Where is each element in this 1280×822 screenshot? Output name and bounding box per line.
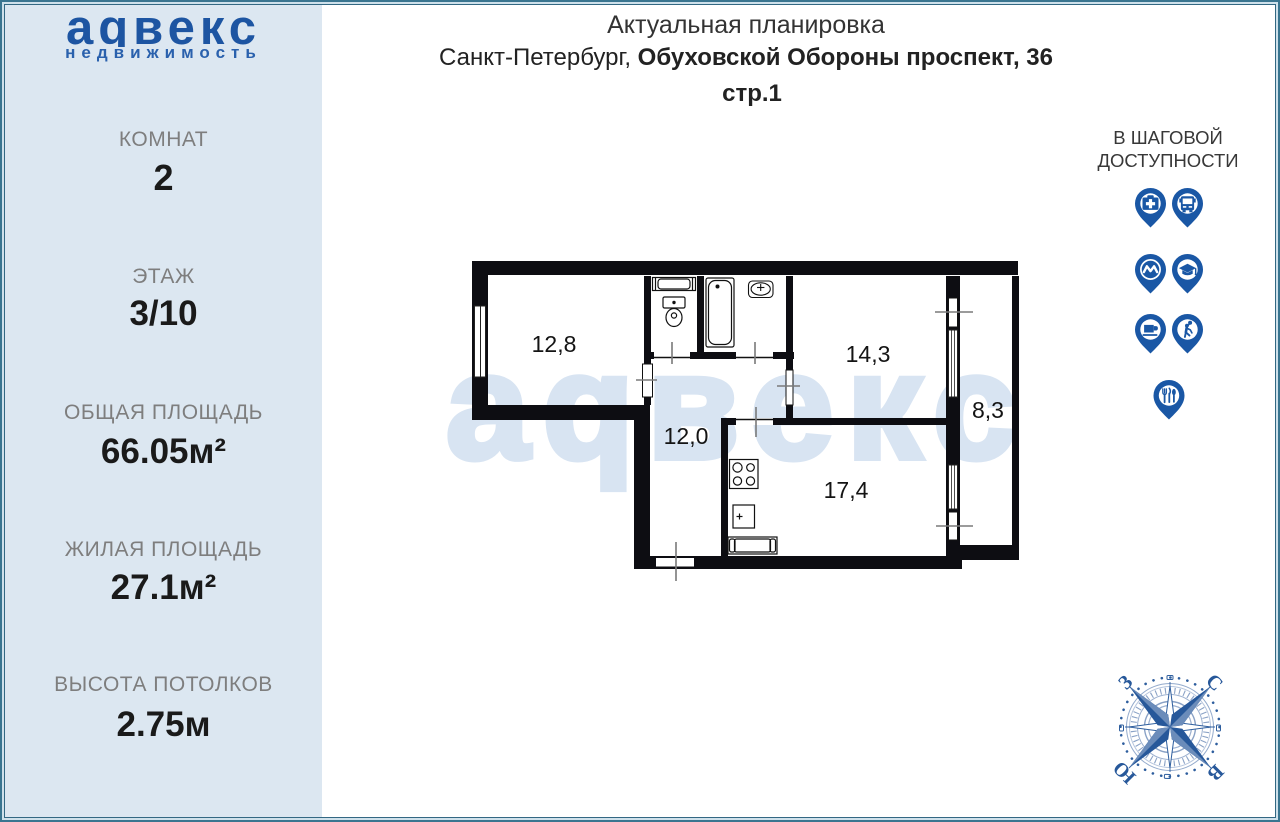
svg-text:12,8: 12,8 [532, 331, 577, 357]
svg-text:14,3: 14,3 [846, 341, 891, 367]
svg-text:17,4: 17,4 [824, 477, 869, 503]
svg-text:12,0: 12,0 [664, 423, 709, 449]
svg-text:8,3: 8,3 [972, 397, 1004, 423]
